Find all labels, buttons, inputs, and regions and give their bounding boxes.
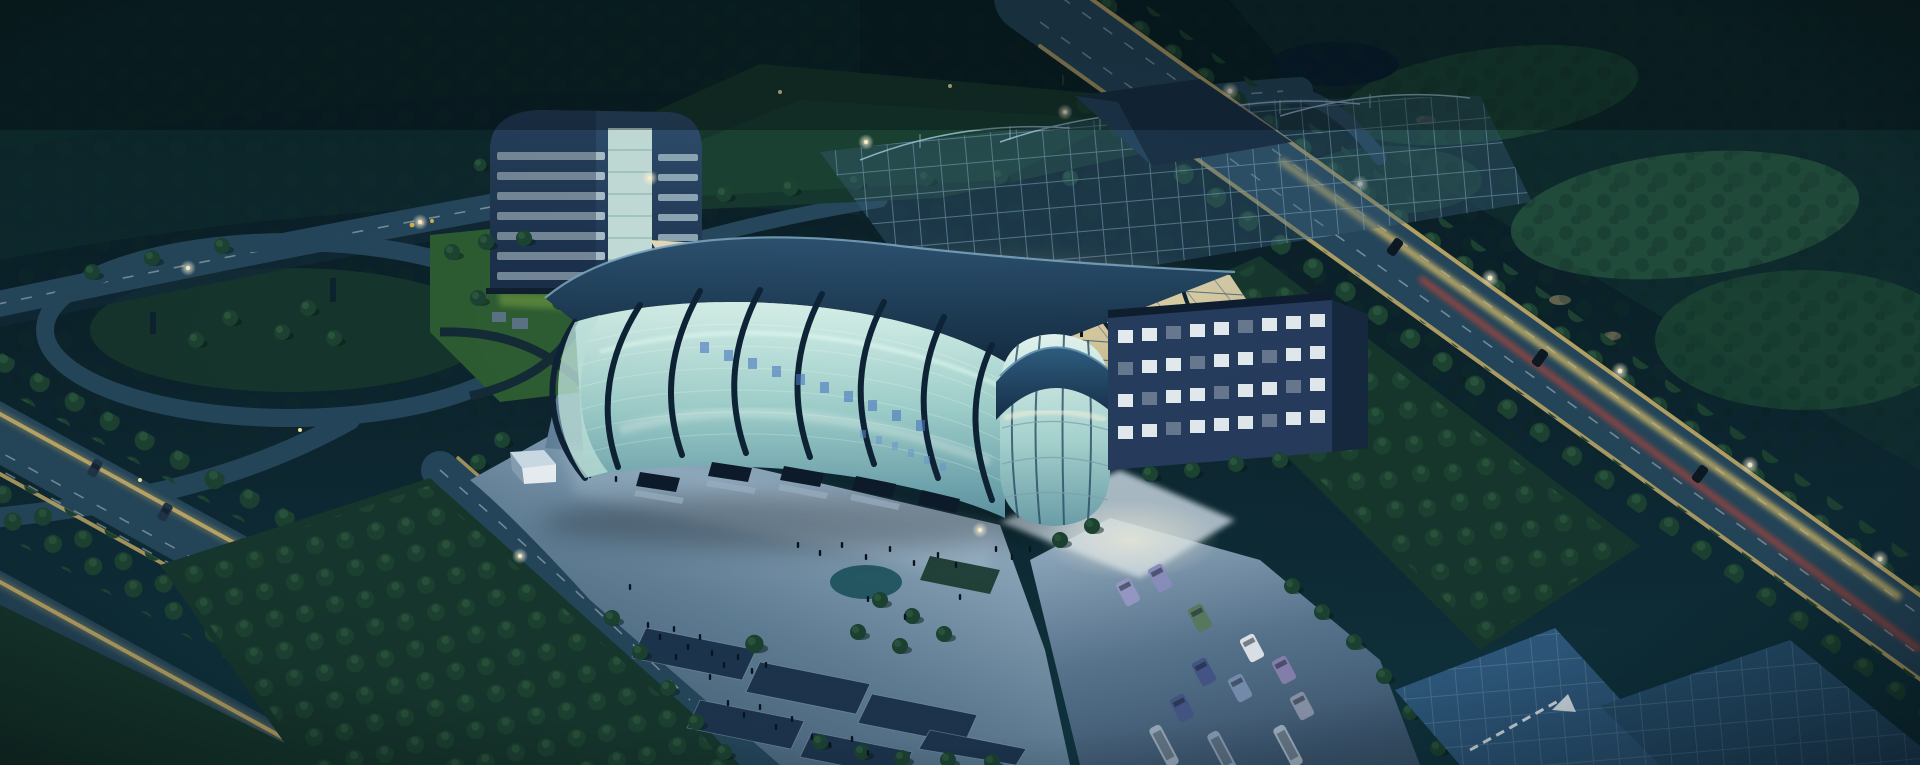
top-shade (0, 0, 1920, 130)
scene-canvas (0, 0, 1920, 765)
aerial-night-render (0, 0, 1920, 765)
